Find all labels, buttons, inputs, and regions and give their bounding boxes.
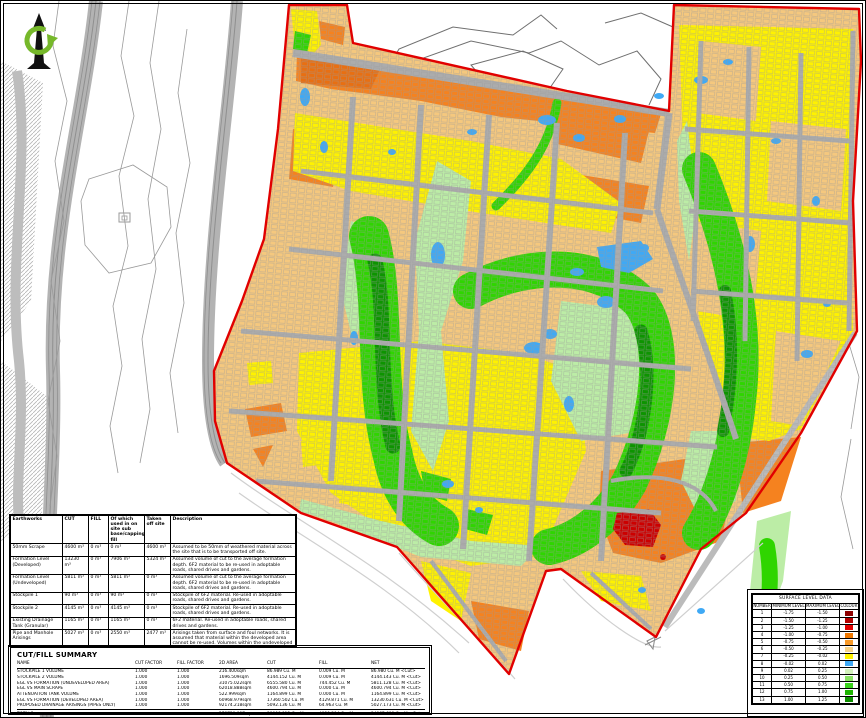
sum-h-cut-factor: CUT FACTOR <box>135 661 177 669</box>
sum-cf <box>135 709 177 718</box>
ew-desc: Assumed volume of cut to the average for… <box>171 556 296 574</box>
ew-taken: 0 m³ <box>145 617 171 630</box>
ew-taken: 0 m³ <box>145 605 171 618</box>
lg-colour-cell <box>839 696 858 703</box>
colour-swatch <box>845 669 853 674</box>
colour-swatch <box>845 690 853 695</box>
ew-row: Stockpile 24145 m³0 m³4145 m³0 m³Stockpi… <box>11 605 296 618</box>
sum-area: 278730.097sqm <box>219 709 267 718</box>
drawing-sheet: Earthworks CUT FILL Of which used in on … <box>0 0 866 718</box>
ew-cut: 13230 m³ <box>63 556 89 574</box>
ew-cut: 4145 m³ <box>63 605 89 618</box>
ew-fill: 0 m³ <box>89 605 109 618</box>
ew-h-used: Of which used in on site sub base/cappin… <box>109 516 145 544</box>
lg-num: 10 <box>753 675 772 682</box>
cutfill-summary-panel: CUT/FILL SUMMARY NAME CUT FACTOR FILL FA… <box>10 647 430 713</box>
lg-max: 0.50 <box>805 675 839 682</box>
surface-level-legend: SURFACE LEVEL DATA NUMBER MINIMUM LEVEL … <box>751 593 860 705</box>
lg-min: -0.75 <box>772 639 806 646</box>
lg-max: -0.02 <box>805 653 839 660</box>
surface-level-legend-panel: SURFACE LEVEL DATA NUMBER MINIMUM LEVEL … <box>747 589 864 717</box>
ew-row: 50mm Scrape4600 m³0 m³0 m³4600 m³Assumed… <box>11 544 296 557</box>
ew-fill: 0 m³ <box>89 574 109 592</box>
ew-row: Formation Level (Developed)13230 m³0 m³7… <box>11 556 296 574</box>
ew-name: Formation Level (Developed) <box>11 556 63 574</box>
legend-row: 5-0.75-0.50 <box>753 639 859 646</box>
legend-h-max: MAXIMUM LEVEL <box>805 603 839 610</box>
legend-title-row: SURFACE LEVEL DATA <box>753 595 859 604</box>
ew-h-desc: Description <box>171 516 296 544</box>
ew-taken: 4600 m³ <box>145 544 171 557</box>
sum-h-net: NET <box>371 661 425 669</box>
ew-desc: Stockpile of 6F2 material. Re-used in ad… <box>171 592 296 605</box>
lg-min: 0.75 <box>772 689 806 696</box>
lg-min: -1.75 <box>772 610 806 617</box>
ew-h-fill: FILL <box>89 516 109 544</box>
sum-net: 34067.608 Cu. M <Cut> <box>371 709 425 718</box>
cutfill-summary-table: NAME CUT FACTOR FILL FACTOR 2D AREA CUT … <box>17 661 425 718</box>
sum-ff <box>177 709 219 718</box>
cutfill-summary-title: CUT/FILL SUMMARY <box>17 651 425 659</box>
ew-used: 5811 m³ <box>109 574 145 592</box>
lg-colour-cell <box>839 631 858 638</box>
lg-num: 5 <box>753 639 772 646</box>
lg-colour-cell <box>839 675 858 682</box>
legend-h-colour: COLOUR <box>839 603 858 610</box>
colour-swatch <box>845 654 853 659</box>
lg-colour-cell <box>839 682 858 689</box>
ew-name: 50mm Scrape <box>11 544 63 557</box>
ew-header-row: Earthworks CUT FILL Of which used in on … <box>11 516 296 544</box>
lg-min: 0.02 <box>772 667 806 674</box>
ew-desc: 6F2 material. Re-used in adoptable roads… <box>171 617 296 630</box>
ew-used: 1165 m³ <box>109 617 145 630</box>
sum-name: TOTALS <box>17 709 135 718</box>
lg-min: 0.25 <box>772 675 806 682</box>
ew-row: Existing Drainage Tank (Granular)1165 m³… <box>11 617 296 630</box>
lg-colour-cell <box>839 617 858 624</box>
lg-colour-cell <box>839 660 858 667</box>
lg-num: 1 <box>753 610 772 617</box>
legend-row: 4-1.00-0.75 <box>753 631 859 638</box>
ew-cut: 1165 m³ <box>63 617 89 630</box>
lg-max: -1.00 <box>805 624 839 631</box>
ew-h-name: Earthworks <box>11 516 63 544</box>
legend-row: 3-1.25-1.00 <box>753 624 859 631</box>
colour-swatch <box>845 683 853 688</box>
legend-row: 6-0.50-0.25 <box>753 646 859 653</box>
ew-used: 90 m³ <box>109 592 145 605</box>
lg-min: 0.50 <box>772 682 806 689</box>
sum-header-row: NAME CUT FACTOR FILL FACTOR 2D AREA CUT … <box>17 661 425 669</box>
sum-net: 4144.143 Cu. M <Cut> <box>371 675 425 681</box>
colour-swatch <box>845 611 853 616</box>
ew-cut: 90 m³ <box>63 592 89 605</box>
legend-h-number: NUMBER <box>753 603 772 610</box>
lg-max: 0.25 <box>805 667 839 674</box>
ew-fill: 0 m³ <box>89 617 109 630</box>
ew-name: Stockpile 1 <box>11 592 63 605</box>
ew-row: Formation Level (Undeveloped)5811 m³0 m³… <box>11 574 296 592</box>
legend-row: 7-0.25-0.02 <box>753 653 859 660</box>
legend-row: 8-0.020.02 <box>753 660 859 667</box>
lg-num: 3 <box>753 624 772 631</box>
lg-min: -0.02 <box>772 660 806 667</box>
lg-colour-cell <box>839 646 858 653</box>
lg-num: 12 <box>753 689 772 696</box>
ew-taken: 5324 m³ <box>145 556 171 574</box>
lg-colour-cell <box>839 653 858 660</box>
ew-h-taken: Taken off site <box>145 516 171 544</box>
lg-max: -1.25 <box>805 617 839 624</box>
colour-swatch <box>845 647 853 652</box>
colour-swatch <box>845 676 853 681</box>
ew-desc: Stockpile of 6F2 material. Re-used in ad… <box>171 605 296 618</box>
lg-max: 1.25 <box>805 696 839 703</box>
legend-row: 131.001.25 <box>753 696 859 703</box>
earthworks-table-panel: Earthworks CUT FILL Of which used in on … <box>9 514 297 647</box>
ew-taken: 0 m³ <box>145 574 171 592</box>
lg-num: 13 <box>753 696 772 703</box>
ew-desc: Assumed volume of cut to the average for… <box>171 574 296 592</box>
ew-cut: 4600 m³ <box>63 544 89 557</box>
legend-row: 110.500.75 <box>753 682 859 689</box>
lg-colour-cell <box>839 624 858 631</box>
ew-used: 0 m³ <box>109 544 145 557</box>
legend-row: 2-1.50-1.25 <box>753 617 859 624</box>
legend-row: 90.020.25 <box>753 667 859 674</box>
lg-max: 1.00 <box>805 689 839 696</box>
ew-h-cut: CUT <box>63 516 89 544</box>
legend-title: SURFACE LEVEL DATA <box>753 595 859 604</box>
sum-h-area: 2D AREA <box>219 661 267 669</box>
lg-max: 0.02 <box>805 660 839 667</box>
lg-min: -0.50 <box>772 646 806 653</box>
lg-num: 11 <box>753 682 772 689</box>
ew-taken: 0 m³ <box>145 592 171 605</box>
ew-fill: 0 m³ <box>89 544 109 557</box>
lg-max: -0.75 <box>805 631 839 638</box>
ew-used: 7906 m³ <box>109 556 145 574</box>
legend-row: 1-1.75-1.50 <box>753 610 859 617</box>
colour-swatch <box>845 640 853 645</box>
lg-max: -0.50 <box>805 639 839 646</box>
lg-colour-cell <box>839 667 858 674</box>
sum-h-fill-factor: FILL FACTOR <box>177 661 219 669</box>
colour-swatch <box>845 618 853 623</box>
lg-colour-cell <box>839 689 858 696</box>
lg-max: 0.75 <box>805 682 839 689</box>
lg-min: -0.25 <box>772 653 806 660</box>
lg-colour-cell <box>839 610 858 617</box>
legend-row: 100.250.50 <box>753 675 859 682</box>
ew-fill: 0 m³ <box>89 592 109 605</box>
lg-num: 7 <box>753 653 772 660</box>
lg-num: 8 <box>753 660 772 667</box>
lg-min: -1.25 <box>772 624 806 631</box>
ew-used: 4145 m³ <box>109 605 145 618</box>
sum-net: 1164.899 Cu. M <Cut> <box>371 692 425 698</box>
lg-max: -1.50 <box>805 610 839 617</box>
lg-max: -0.25 <box>805 646 839 653</box>
legend-header-row: NUMBER MINIMUM LEVEL MAXIMUM LEVEL COLOU… <box>753 603 859 610</box>
colour-swatch <box>845 697 853 702</box>
sum-cut: 39006.912 Cu. M <box>267 709 319 718</box>
ew-name: Existing Drainage Tank (Granular) <box>11 617 63 630</box>
lg-colour-cell <box>839 639 858 646</box>
ew-cut: 5811 m³ <box>63 574 89 592</box>
legend-table: SURFACE LEVEL DATA NUMBER MINIMUM LEVEL … <box>752 594 859 704</box>
colour-swatch <box>845 633 853 638</box>
ew-fill: 0 m³ <box>89 556 109 574</box>
lg-num: 6 <box>753 646 772 653</box>
lg-num: 4 <box>753 631 772 638</box>
colour-swatch <box>845 661 853 666</box>
ew-name: Formation Level (Undeveloped) <box>11 574 63 592</box>
legend-row: 120.751.00 <box>753 689 859 696</box>
legend-h-min: MINIMUM LEVEL <box>772 603 806 610</box>
lg-num: 2 <box>753 617 772 624</box>
sum-h-fill: FILL <box>319 661 371 669</box>
lg-num: 9 <box>753 667 772 674</box>
colour-swatch <box>845 625 853 630</box>
sum-fill: 4939.304 Cu. M <box>319 709 371 718</box>
ew-row: Stockpile 190 m³0 m³90 m³0 m³Stockpile o… <box>11 592 296 605</box>
ew-name: Stockpile 2 <box>11 605 63 618</box>
sum-net: 5027.173 Cu. M <Cut> <box>371 703 425 709</box>
sum-h-name: NAME <box>17 661 135 669</box>
sum-totals-row: TOTALS278730.097sqm39006.912 Cu. M4939.3… <box>17 709 425 718</box>
lg-min: 1.00 <box>772 696 806 703</box>
ew-desc: Assumed to be 50mm of weathered material… <box>171 544 296 557</box>
sum-h-cut: CUT <box>267 661 319 669</box>
lg-min: -1.50 <box>772 617 806 624</box>
lg-min: -1.00 <box>772 631 806 638</box>
